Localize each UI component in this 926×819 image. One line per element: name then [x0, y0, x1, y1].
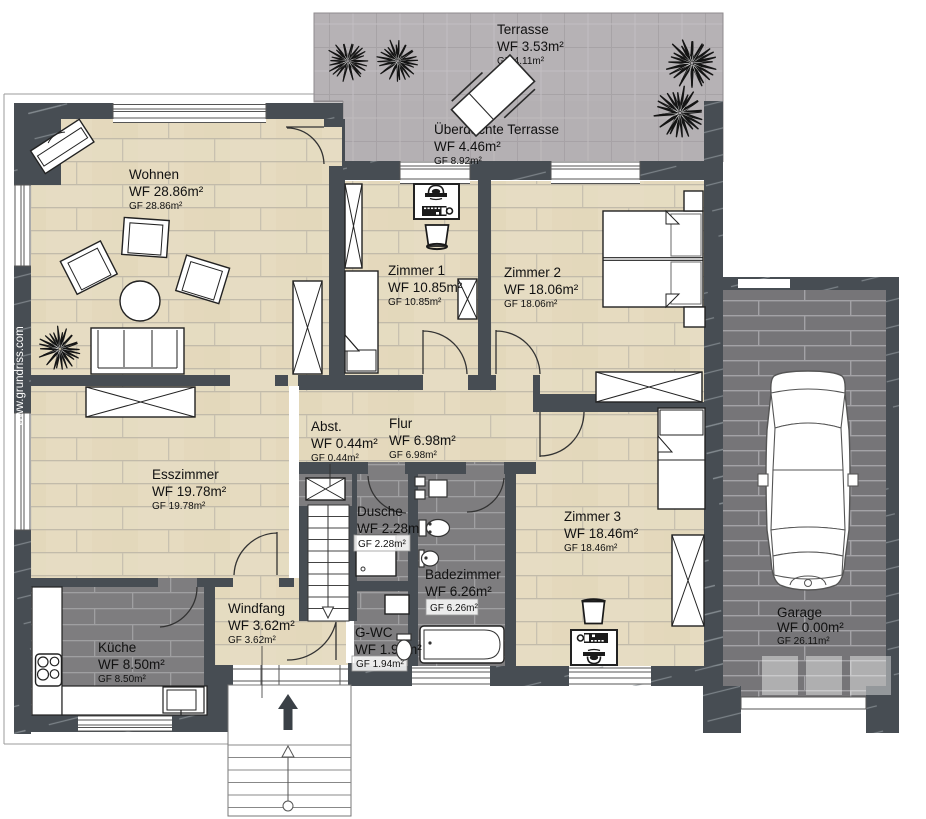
svg-text:WF 28.86m²: WF 28.86m² — [129, 184, 204, 199]
svg-text:Dusche: Dusche — [357, 504, 403, 519]
svg-text:WF 1.94m²: WF 1.94m² — [355, 642, 422, 657]
svg-text:Zimmer 3: Zimmer 3 — [564, 509, 621, 524]
svg-text:Garage: Garage — [777, 605, 822, 620]
svg-text:WF 0.44m²: WF 0.44m² — [311, 436, 378, 451]
svg-text:GF 3.62m²: GF 3.62m² — [228, 635, 276, 646]
svg-text:Abst.: Abst. — [311, 419, 342, 434]
svg-text:www.grundriss.com: www.grundriss.com — [14, 326, 26, 427]
svg-text:Esszimmer: Esszimmer — [152, 467, 219, 482]
svg-text:WF 4.46m²: WF 4.46m² — [434, 139, 501, 154]
svg-text:WF 2.28m²: WF 2.28m² — [357, 521, 424, 536]
svg-text:Flur: Flur — [389, 416, 413, 431]
svg-text:G-WC: G-WC — [355, 625, 393, 640]
svg-text:Überdachte Terrasse: Überdachte Terrasse — [434, 122, 559, 137]
svg-text:WF 10.85m²: WF 10.85m² — [388, 280, 463, 295]
svg-text:GF 1.94m²: GF 1.94m² — [356, 659, 404, 670]
svg-text:WF 6.26m²: WF 6.26m² — [425, 584, 492, 599]
svg-text:Wohnen: Wohnen — [129, 167, 179, 182]
svg-text:GF 10.85m²: GF 10.85m² — [388, 297, 442, 308]
svg-text:Windfang: Windfang — [228, 601, 285, 616]
svg-text:GF 6.98m²: GF 6.98m² — [389, 450, 437, 461]
svg-text:Badezimmer: Badezimmer — [425, 567, 501, 582]
svg-text:GF 19.78m²: GF 19.78m² — [152, 501, 206, 512]
svg-text:GF 18.06m²: GF 18.06m² — [504, 299, 558, 310]
svg-text:Zimmer 1: Zimmer 1 — [388, 263, 445, 278]
svg-text:GF 8.92m²: GF 8.92m² — [434, 156, 482, 167]
svg-text:WF 6.98m²: WF 6.98m² — [389, 433, 456, 448]
svg-text:GF 0.44m²: GF 0.44m² — [311, 453, 359, 464]
svg-text:WF 0.00m²: WF 0.00m² — [777, 620, 844, 635]
svg-text:WF 18.46m²: WF 18.46m² — [564, 526, 639, 541]
svg-text:Zimmer 2: Zimmer 2 — [504, 265, 561, 280]
svg-text:WF 3.53m²: WF 3.53m² — [497, 39, 564, 54]
svg-text:GF 18.46m²: GF 18.46m² — [564, 543, 618, 554]
svg-text:WF 19.78m²: WF 19.78m² — [152, 484, 227, 499]
svg-text:WF 3.62m²: WF 3.62m² — [228, 618, 295, 633]
svg-text:WF 18.06m²: WF 18.06m² — [504, 282, 579, 297]
svg-text:GF 8.50m²: GF 8.50m² — [98, 674, 146, 685]
svg-text:GF 26.11m²: GF 26.11m² — [777, 636, 830, 647]
svg-text:GF 28.86m²: GF 28.86m² — [129, 201, 183, 212]
svg-text:GF 6.26m²: GF 6.26m² — [430, 603, 478, 614]
svg-text:WF 8.50m²: WF 8.50m² — [98, 657, 165, 672]
svg-text:Küche: Küche — [98, 640, 136, 655]
svg-text:GF 2.28m²: GF 2.28m² — [358, 539, 406, 550]
svg-text:Terrasse: Terrasse — [497, 22, 549, 37]
